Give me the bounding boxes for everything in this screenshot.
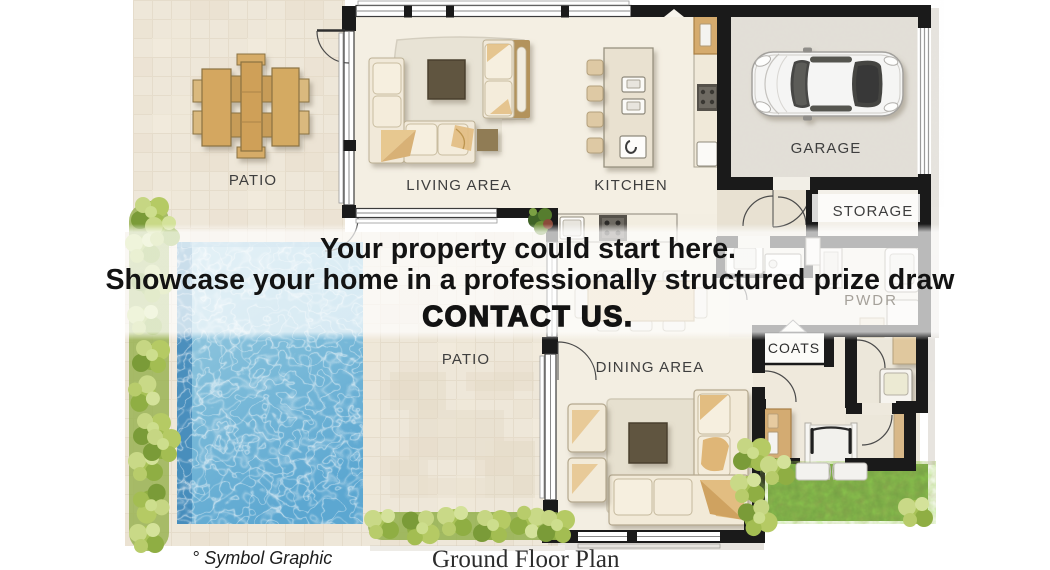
svg-text:STORAGE: STORAGE	[833, 203, 914, 220]
svg-text:CONTACT US.: CONTACT US.	[422, 301, 633, 333]
svg-text:Showcase your home in a profes: Showcase your home in a professionally s…	[106, 264, 956, 296]
svg-text:GARAGE: GARAGE	[791, 140, 862, 157]
svg-text:PATIO: PATIO	[229, 172, 277, 189]
svg-text:COATS: COATS	[768, 340, 820, 356]
svg-text:Ground Floor Plan: Ground Floor Plan	[432, 546, 620, 570]
svg-text:Your property could start here: Your property could start here.	[320, 233, 736, 265]
svg-text:LIVING AREA: LIVING AREA	[406, 177, 511, 194]
svg-text:PATIO: PATIO	[442, 351, 490, 368]
svg-text:KITCHEN: KITCHEN	[594, 177, 668, 194]
svg-text:° Symbol Graphic: ° Symbol Graphic	[192, 548, 332, 568]
svg-text:DINING AREA: DINING AREA	[596, 359, 705, 376]
